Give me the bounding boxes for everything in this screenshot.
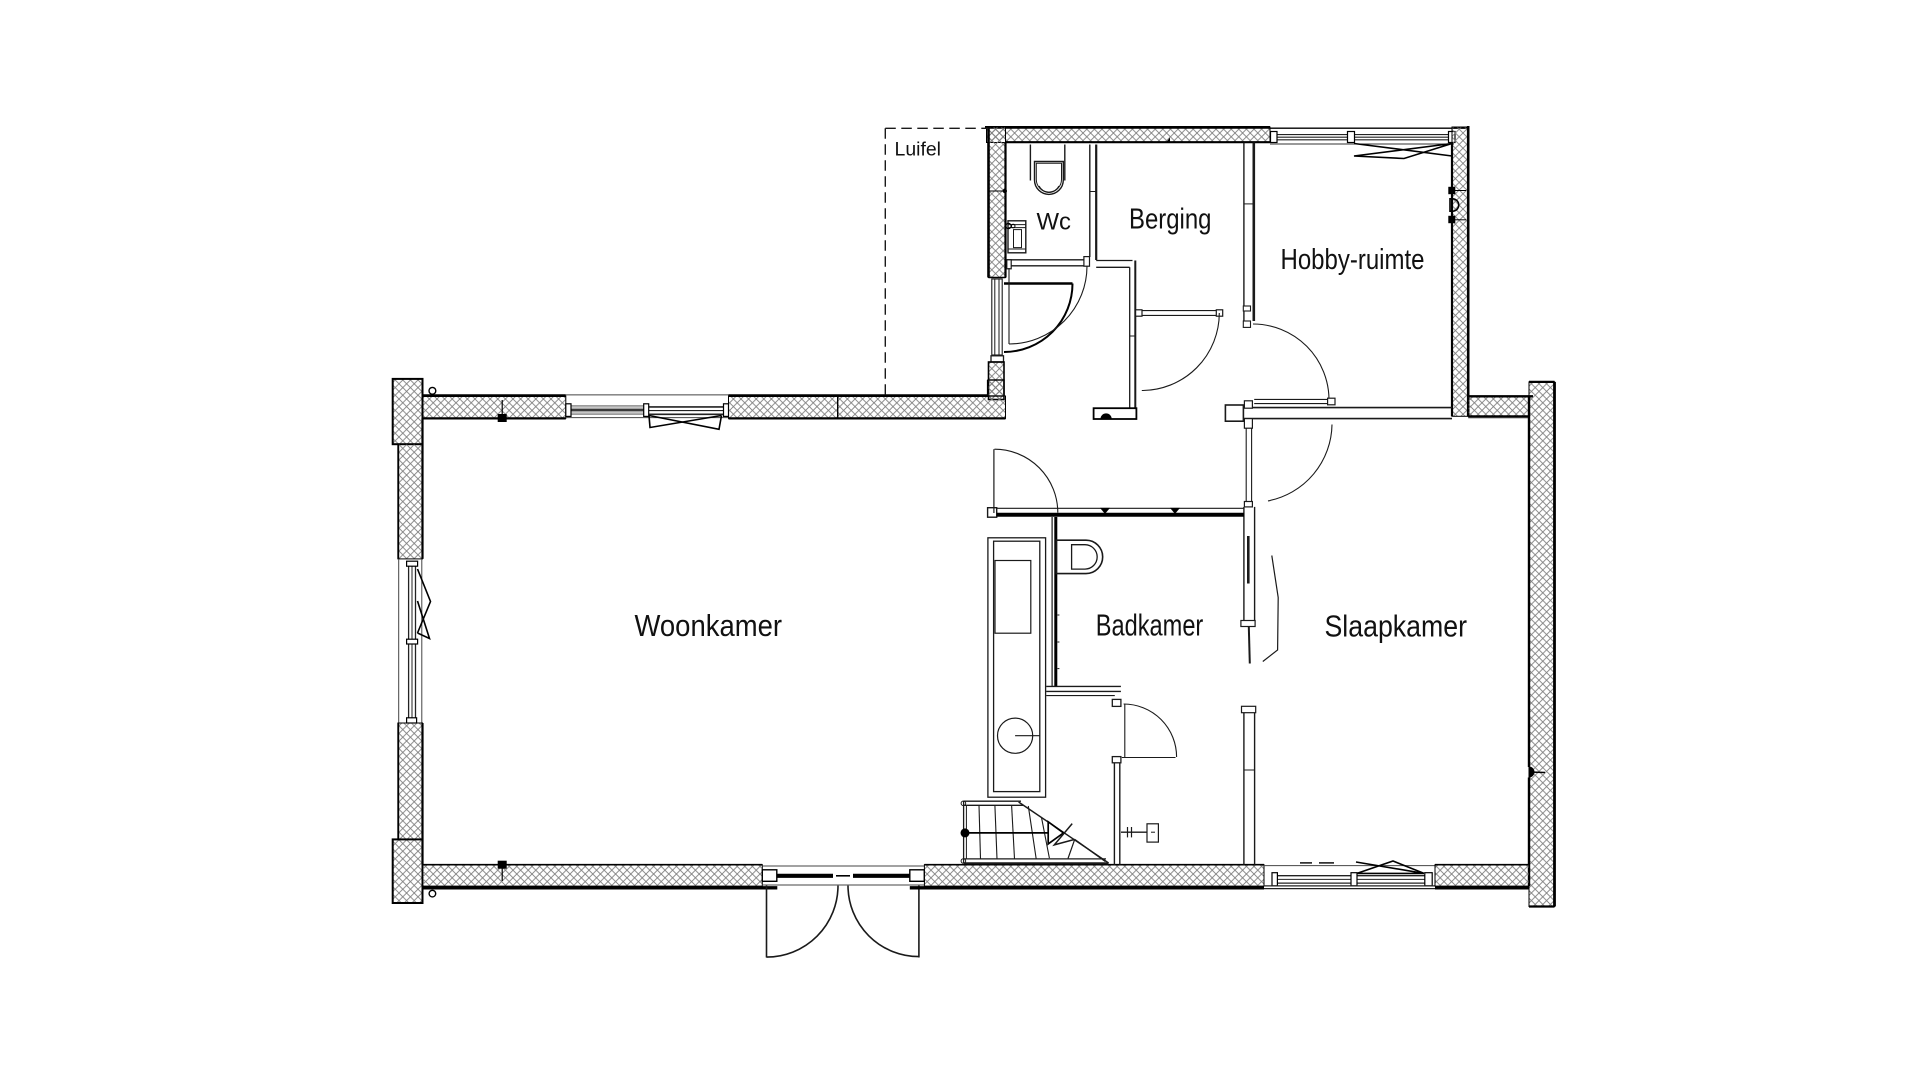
svg-text:Luifel: Luifel [895,139,942,160]
svg-text:Berging: Berging [1129,204,1212,236]
svg-text:Slaapkamer: Slaapkamer [1325,609,1468,644]
svg-text:Hobby-ruimte: Hobby-ruimte [1281,244,1425,276]
svg-text:Badkamer: Badkamer [1096,608,1204,643]
svg-text:Wc: Wc [1037,208,1072,235]
svg-text:Woonkamer: Woonkamer [635,608,783,643]
